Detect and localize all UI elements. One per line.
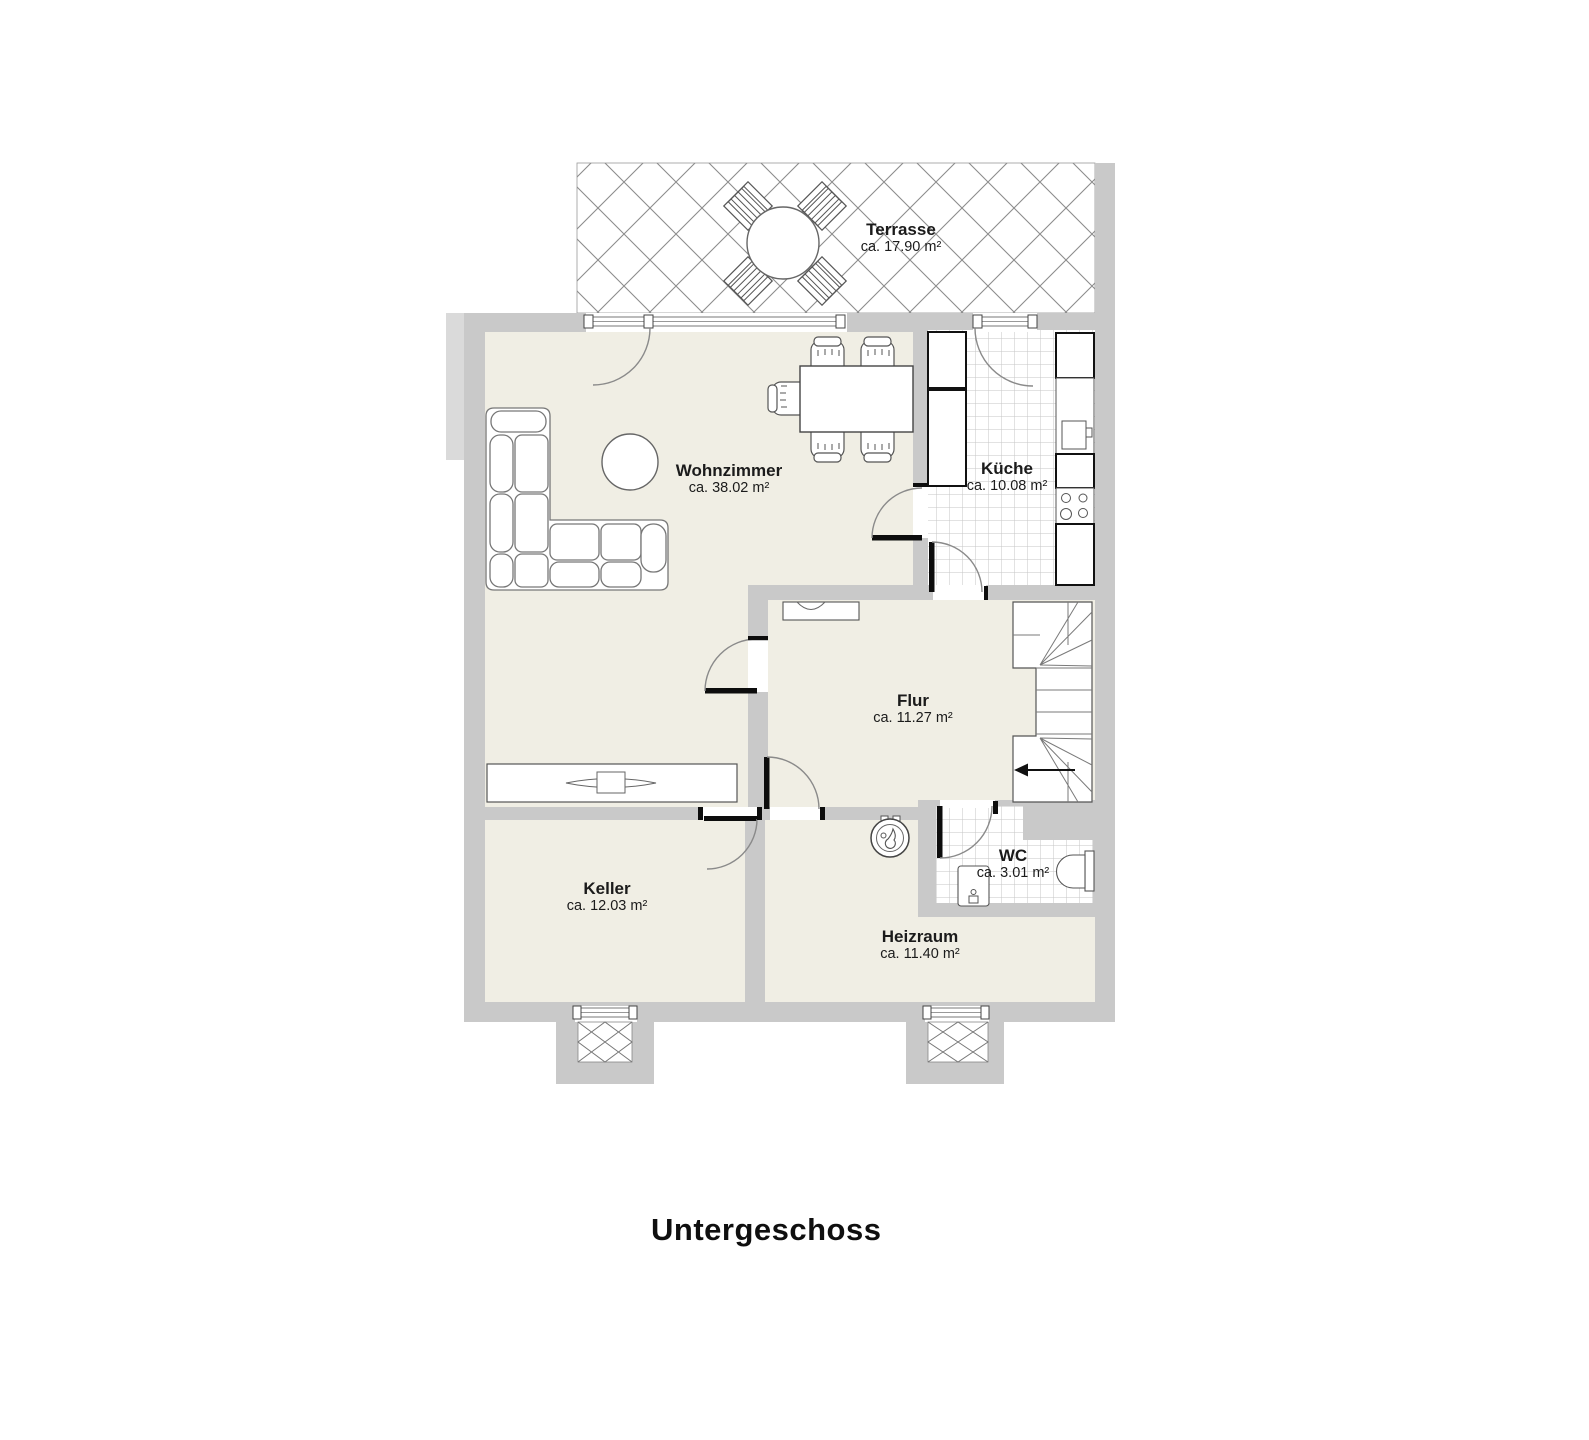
room-label-keller: Keller ca. 12.03 m² <box>567 880 648 914</box>
door-leaf <box>705 688 757 694</box>
heizraum-window <box>923 1006 989 1019</box>
dining-table <box>800 366 913 432</box>
terrace-window <box>584 315 845 328</box>
door-leaf <box>704 816 757 821</box>
room-name: Terrasse <box>861 221 942 239</box>
room-label-heizraum: Heizraum ca. 11.40 m² <box>880 928 960 962</box>
room-area: ca. 11.40 m² <box>880 946 960 962</box>
terrace <box>577 163 1095 313</box>
terrace-table <box>747 207 819 279</box>
room-label-wc: WC ca. 3.01 m² <box>977 847 1050 881</box>
stove <box>1056 488 1094 524</box>
room-label-wohnzimmer: Wohnzimmer ca. 38.02 m² <box>676 462 782 496</box>
door-leaf <box>929 542 935 592</box>
room-area: ca. 10.08 m² <box>967 478 1048 494</box>
room-area: ca. 12.03 m² <box>567 898 648 914</box>
room-name: Küche <box>967 460 1048 478</box>
room-name: Heizraum <box>880 928 960 946</box>
room-label-flur: Flur ca. 11.27 m² <box>873 692 953 726</box>
room-name: Wohnzimmer <box>676 462 782 480</box>
room-area: ca. 38.02 m² <box>676 480 782 496</box>
floor-title: Untergeschoss <box>651 1212 881 1248</box>
room-name: Flur <box>873 692 953 710</box>
party-wall-stub <box>446 313 464 460</box>
light-well <box>578 1022 632 1062</box>
flur-dresser <box>783 602 859 620</box>
room-area: ca. 3.01 m² <box>977 865 1050 881</box>
light-well <box>928 1022 988 1062</box>
room-label-kueche: Küche ca. 10.08 m² <box>967 460 1048 494</box>
room-name: WC <box>977 847 1050 865</box>
room-area: ca. 11.27 m² <box>873 710 953 726</box>
floorplan: Terrasse ca. 17.90 m² Wohnzimmer ca. 38.… <box>0 0 1589 1440</box>
room-name: Keller <box>567 880 648 898</box>
door-leaf <box>937 806 943 858</box>
room-area: ca. 17.90 m² <box>861 239 942 255</box>
door-leaf <box>764 757 770 809</box>
sideboard <box>487 764 737 802</box>
kitchen-entry-door-frame <box>973 315 1037 328</box>
room-label-terrasse: Terrasse ca. 17.90 m² <box>861 221 942 255</box>
keller-window <box>573 1006 637 1019</box>
coffee-table <box>602 434 658 490</box>
door-leaf <box>872 535 922 541</box>
